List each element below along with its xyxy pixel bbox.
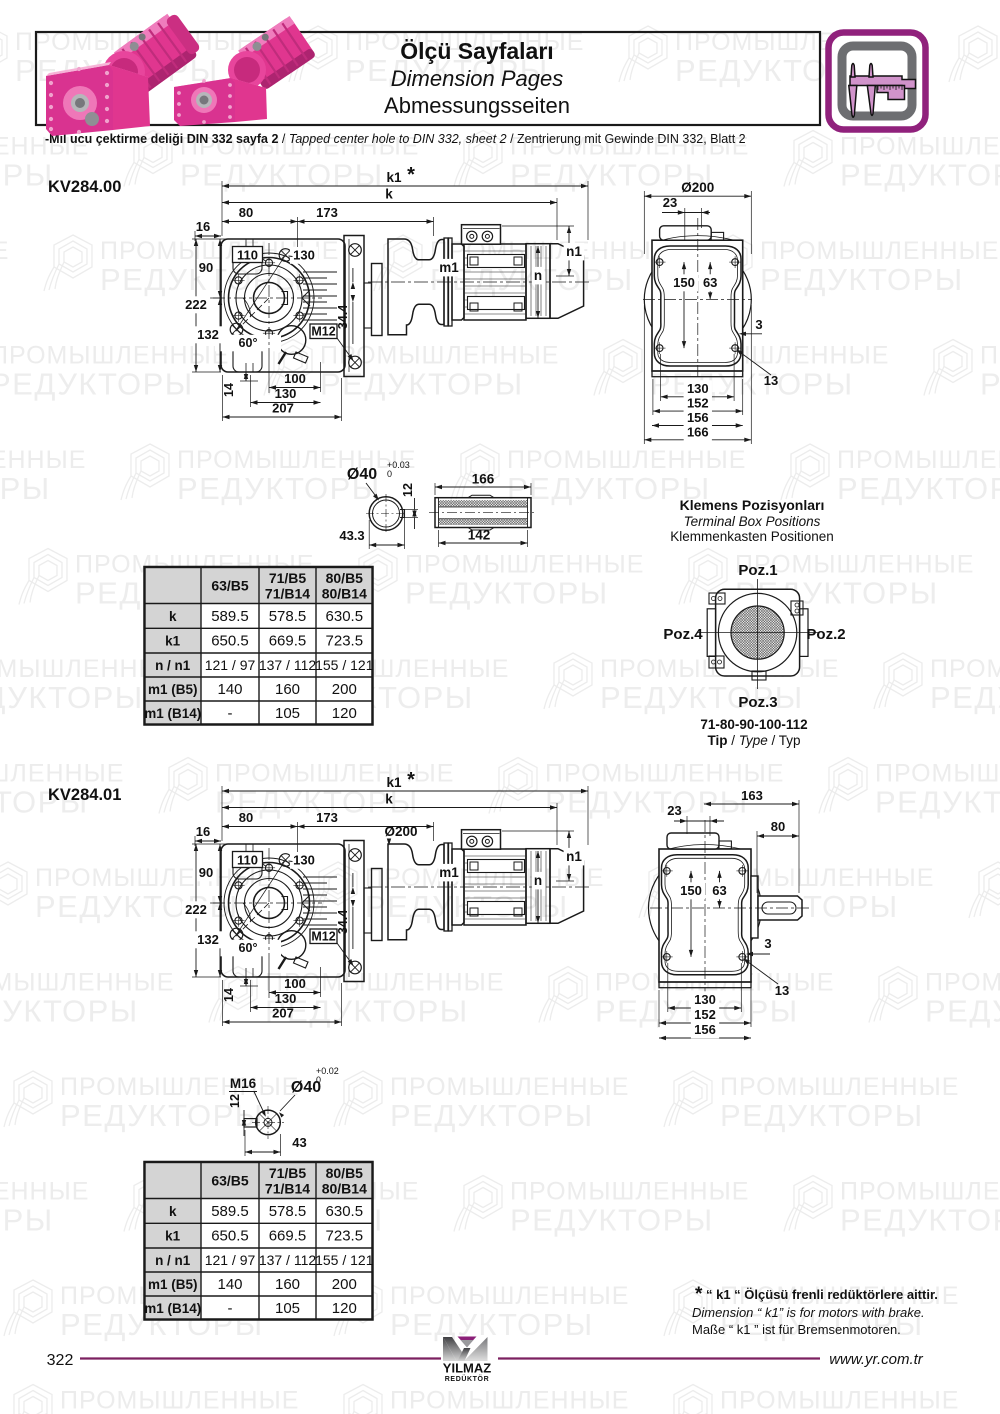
- svg-text:m1: m1: [439, 260, 459, 275]
- svg-text:173: 173: [316, 205, 338, 220]
- svg-text:16: 16: [196, 219, 210, 234]
- svg-text:Klemmenkasten Positionen: Klemmenkasten Positionen: [670, 529, 834, 544]
- svg-text:669.5: 669.5: [269, 1228, 307, 1245]
- svg-text:669.5: 669.5: [269, 633, 307, 650]
- svg-text:578.5: 578.5: [269, 1203, 307, 1220]
- svg-text:YILMAZ: YILMAZ: [443, 1361, 491, 1376]
- svg-text:63/B5: 63/B5: [211, 1173, 249, 1189]
- svg-text:80/B14: 80/B14: [322, 586, 367, 602]
- svg-text:23: 23: [667, 803, 681, 818]
- svg-text:-: -: [228, 1300, 233, 1317]
- svg-text:80: 80: [771, 819, 785, 834]
- svg-text:k: k: [169, 1204, 177, 1219]
- svg-text:34.4: 34.4: [336, 305, 350, 329]
- svg-text:100: 100: [284, 976, 306, 991]
- svg-text:166: 166: [687, 424, 709, 439]
- svg-text:Ø200: Ø200: [384, 824, 417, 839]
- svg-text:723.5: 723.5: [326, 633, 364, 650]
- svg-text:152: 152: [694, 1007, 716, 1022]
- svg-text:KV284.00: KV284.00: [48, 178, 121, 196]
- svg-text:M12: M12: [311, 930, 335, 944]
- svg-text:16: 16: [196, 824, 210, 839]
- svg-text:130: 130: [687, 381, 709, 396]
- svg-text:200: 200: [332, 681, 357, 698]
- svg-text:160: 160: [275, 1276, 300, 1293]
- svg-text:k1: k1: [165, 1229, 181, 1244]
- svg-text:k1: k1: [386, 170, 402, 185]
- svg-text:k1: k1: [165, 634, 181, 649]
- svg-text:105: 105: [275, 1300, 300, 1317]
- svg-text:REDÜKTÖR: REDÜKTÖR: [445, 1374, 489, 1383]
- svg-text:130: 130: [293, 248, 315, 263]
- svg-text:3: 3: [764, 936, 771, 951]
- svg-text:Ø40: Ø40: [347, 466, 377, 483]
- svg-text:130: 130: [275, 386, 297, 401]
- svg-text:k: k: [385, 187, 393, 202]
- svg-text:Tip / Type / Typ: Tip / Type / Typ: [707, 733, 800, 748]
- svg-text:110: 110: [237, 853, 258, 868]
- svg-text:90: 90: [199, 865, 213, 880]
- svg-text:80/B5: 80/B5: [326, 1165, 364, 1181]
- svg-text:Abmessungsseiten: Abmessungsseiten: [384, 93, 570, 118]
- svg-text:M16: M16: [230, 1076, 257, 1091]
- svg-text:23: 23: [663, 195, 677, 210]
- svg-text:-Mil ucu çektirme deliği DIN 3: -Mil ucu çektirme deliği DIN 332 sayfa 2…: [45, 132, 746, 146]
- svg-text:KV284.01: KV284.01: [48, 786, 121, 804]
- svg-text:k1: k1: [386, 775, 402, 790]
- svg-text:121 / 97: 121 / 97: [205, 657, 256, 673]
- svg-text:121 / 97: 121 / 97: [205, 1252, 256, 1268]
- svg-text:13: 13: [775, 983, 789, 998]
- svg-text:150: 150: [673, 275, 695, 290]
- svg-text:14: 14: [222, 383, 236, 397]
- svg-text:105: 105: [275, 705, 300, 722]
- svg-text:130: 130: [275, 991, 297, 1006]
- svg-text:222: 222: [185, 297, 207, 312]
- svg-text:137 / 112: 137 / 112: [259, 1252, 317, 1268]
- svg-text:207: 207: [272, 1006, 294, 1021]
- svg-text:*: *: [695, 1284, 703, 1305]
- svg-text:*: *: [407, 164, 415, 186]
- svg-text:*: *: [407, 769, 415, 791]
- svg-text:Dimension “ k1” is for motors: Dimension “ k1” is for motors with brake…: [692, 1305, 925, 1320]
- svg-text:63: 63: [703, 275, 717, 290]
- svg-text:71/B14: 71/B14: [265, 1181, 310, 1197]
- svg-text:n: n: [534, 268, 542, 283]
- svg-text:43.3: 43.3: [339, 528, 364, 543]
- svg-text:Ölçü Sayfaları: Ölçü Sayfaları: [400, 38, 553, 64]
- svg-text:130: 130: [694, 992, 716, 1007]
- svg-text:13: 13: [764, 373, 778, 388]
- svg-text:156: 156: [687, 410, 709, 425]
- svg-text:100: 100: [284, 371, 306, 386]
- svg-text:k: k: [169, 609, 177, 624]
- svg-text:60°: 60°: [239, 336, 258, 350]
- svg-text:m1 (B14): m1 (B14): [144, 706, 201, 721]
- svg-text:k: k: [385, 792, 393, 807]
- svg-text:163: 163: [741, 788, 763, 803]
- svg-text:650.5: 650.5: [211, 1228, 249, 1245]
- svg-text:142: 142: [468, 528, 491, 543]
- svg-text:80/B5: 80/B5: [326, 570, 364, 586]
- svg-text:Poz.3: Poz.3: [738, 694, 777, 711]
- svg-text:3: 3: [755, 317, 762, 332]
- svg-text:723.5: 723.5: [326, 1228, 364, 1245]
- svg-text:m1 (B14): m1 (B14): [144, 1301, 201, 1316]
- svg-text:90: 90: [199, 260, 213, 275]
- svg-text:80/B14: 80/B14: [322, 1181, 367, 1197]
- svg-text:71/B5: 71/B5: [269, 570, 307, 586]
- svg-text:34.4: 34.4: [336, 910, 350, 934]
- svg-text:120: 120: [332, 1300, 357, 1317]
- svg-text:120: 120: [332, 705, 357, 722]
- svg-text:132: 132: [197, 932, 219, 947]
- svg-text:207: 207: [272, 401, 294, 416]
- svg-text:Dimension Pages: Dimension Pages: [391, 66, 563, 91]
- svg-text:Poz.2: Poz.2: [806, 626, 845, 643]
- svg-text:www.yr.com.tr: www.yr.com.tr: [829, 1351, 924, 1368]
- svg-text:130: 130: [293, 853, 315, 868]
- svg-text:Maße “ k1 ” ist für Bremsenmot: Maße “ k1 ” ist für Bremsenmotoren.: [692, 1322, 901, 1337]
- svg-text:578.5: 578.5: [269, 608, 307, 625]
- svg-text:322: 322: [47, 1352, 74, 1369]
- svg-text:71/B14: 71/B14: [265, 586, 310, 602]
- svg-text:“ k1 “ Ölçüsü frenli redüktörl: “ k1 “ Ölçüsü frenli redüktörlere aittir…: [706, 1287, 938, 1302]
- svg-text:n: n: [534, 873, 542, 888]
- svg-text:71/B5: 71/B5: [269, 1165, 307, 1181]
- svg-text:0: 0: [316, 1075, 321, 1085]
- svg-text:156: 156: [694, 1022, 716, 1037]
- svg-text:222: 222: [185, 902, 207, 917]
- svg-text:Poz.1: Poz.1: [738, 562, 777, 579]
- svg-text:60°: 60°: [239, 941, 258, 955]
- svg-text:m1: m1: [439, 865, 459, 880]
- svg-text:0: 0: [387, 469, 392, 479]
- svg-text:14: 14: [222, 988, 236, 1002]
- svg-text:630.5: 630.5: [326, 1203, 364, 1220]
- svg-text:Klemens Pozisyonları: Klemens Pozisyonları: [680, 497, 825, 513]
- svg-text:137 / 112: 137 / 112: [259, 657, 317, 673]
- svg-text:Terminal Box Positions: Terminal Box Positions: [684, 514, 821, 529]
- svg-text:71-80-90-100-112: 71-80-90-100-112: [700, 717, 807, 732]
- svg-text:12: 12: [401, 483, 415, 497]
- svg-text:140: 140: [217, 681, 242, 698]
- svg-text:-: -: [228, 705, 233, 722]
- svg-text:140: 140: [217, 1276, 242, 1293]
- svg-text:589.5: 589.5: [211, 608, 249, 625]
- svg-text:n / n1: n / n1: [155, 1253, 191, 1268]
- svg-text:200: 200: [332, 1276, 357, 1293]
- svg-text:110: 110: [237, 248, 258, 263]
- svg-text:160: 160: [275, 681, 300, 698]
- svg-text:650.5: 650.5: [211, 633, 249, 650]
- svg-text:n1: n1: [566, 849, 582, 864]
- svg-text:152: 152: [687, 396, 709, 411]
- svg-text:80: 80: [239, 205, 253, 220]
- svg-text:M12: M12: [311, 325, 335, 339]
- svg-text:Ø200: Ø200: [681, 180, 714, 195]
- svg-text:63: 63: [712, 883, 726, 898]
- svg-text:63/B5: 63/B5: [211, 578, 249, 594]
- svg-text:80: 80: [239, 810, 253, 825]
- svg-text:155 / 121: 155 / 121: [315, 657, 374, 673]
- svg-text:589.5: 589.5: [211, 1203, 249, 1220]
- svg-text:43: 43: [292, 1135, 306, 1150]
- svg-text:173: 173: [316, 810, 338, 825]
- svg-text:m1 (B5): m1 (B5): [148, 1277, 198, 1292]
- svg-text:n1: n1: [566, 244, 582, 259]
- svg-text:166: 166: [472, 472, 495, 487]
- svg-text:m1 (B5): m1 (B5): [148, 682, 198, 697]
- svg-text:150: 150: [680, 883, 702, 898]
- svg-text:155 / 121: 155 / 121: [315, 1252, 374, 1268]
- svg-text:132: 132: [197, 327, 219, 342]
- svg-text:n / n1: n / n1: [155, 658, 191, 673]
- svg-text:12: 12: [228, 1094, 242, 1108]
- svg-text:630.5: 630.5: [326, 608, 364, 625]
- svg-text:Poz.4: Poz.4: [663, 626, 703, 643]
